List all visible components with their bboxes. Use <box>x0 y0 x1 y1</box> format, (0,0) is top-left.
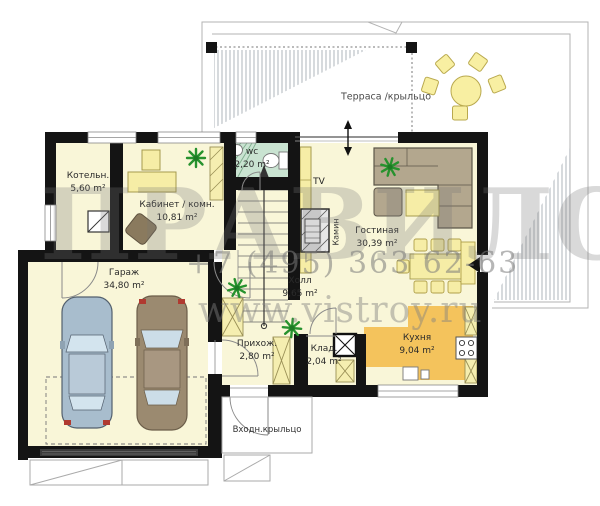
room-area: 9,04 m² <box>399 345 434 358</box>
garage-door <box>40 449 198 456</box>
room-name: Котельн. <box>67 170 109 183</box>
room-area: 2,04 m² <box>306 356 341 369</box>
room-label-kitchen: Кухня9,04 m² <box>399 332 434 358</box>
stove-icon <box>456 337 477 359</box>
fireplace-label: Камин <box>332 218 341 245</box>
fireplace <box>301 209 329 252</box>
room-name: Клад. <box>306 343 341 356</box>
room-name: Гостиная <box>355 225 399 238</box>
room-name: wc <box>234 146 269 159</box>
room-area: 2,80 m² <box>237 351 277 364</box>
terrace-post <box>406 42 417 53</box>
room-name: Кухня <box>399 332 434 345</box>
toilet-tank-icon <box>279 152 288 169</box>
tv-label: TV <box>313 177 325 187</box>
floor-plan-canvas: Котельн.5,60 m² Кабинет / комн.10,81 m² … <box>0 0 600 506</box>
room-label-garage: Гараж34,80 m² <box>103 267 144 293</box>
room-label-entry: Прихож.2,80 m² <box>237 338 277 364</box>
room-area: 9,65 m² <box>282 288 317 301</box>
room-area: 5,60 m² <box>67 183 109 196</box>
car-blue <box>60 297 114 428</box>
terrace-roof-hatch <box>214 50 366 128</box>
coffee-table <box>406 190 439 216</box>
room-area: 10,81 m² <box>139 212 214 225</box>
desk <box>128 172 176 192</box>
room-area: 2,20 m² <box>234 159 269 172</box>
terrace-table-set <box>421 52 506 120</box>
room-name: Кабинет / комн. <box>139 199 214 212</box>
boiler-icon <box>88 211 109 232</box>
kitchen-sink-icon <box>403 367 418 380</box>
room-name: Прихож. <box>237 338 277 351</box>
plant-icon <box>187 149 205 167</box>
room-label-storage: Клад.2,04 m² <box>306 343 341 369</box>
room-name: Гараж <box>103 267 144 280</box>
room-label-living: Гостиная30,39 m² <box>355 225 399 251</box>
terrace-label: Терраса /крыльцо <box>341 92 431 103</box>
office-wardrobe <box>210 147 223 200</box>
room-name: Холл <box>282 275 317 288</box>
room-area: 30,39 m² <box>355 238 399 251</box>
side-roof-hatch <box>494 148 570 300</box>
room-label-boiler: Котельн.5,60 m² <box>67 170 109 196</box>
room-label-hall: Холл9,65 m² <box>282 275 317 301</box>
car-brown <box>135 296 189 430</box>
terrace-post <box>206 42 217 53</box>
room-area: 34,80 m² <box>103 280 144 293</box>
porch-label: Входн.крыльцо <box>233 425 302 435</box>
room-label-wc: wc2,20 m² <box>234 146 269 172</box>
room-label-office: Кабинет / комн.10,81 m² <box>139 199 214 225</box>
shelf <box>142 150 160 170</box>
armchair <box>374 188 402 216</box>
